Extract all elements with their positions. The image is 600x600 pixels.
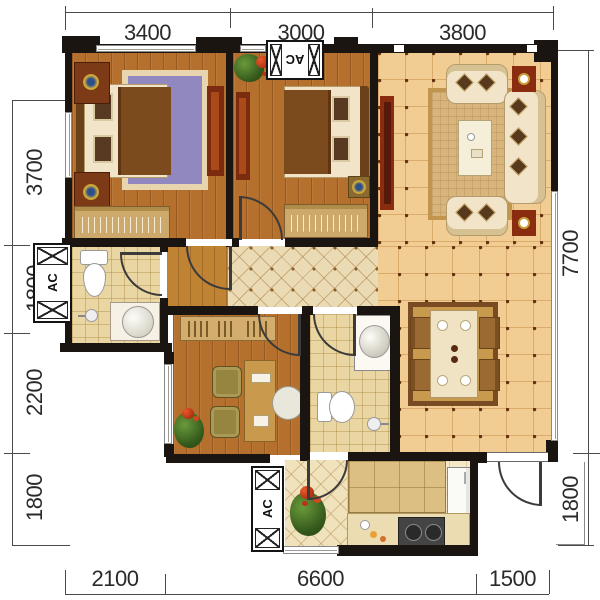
sofa-small-bottom (446, 196, 508, 236)
dim-line-top (65, 12, 553, 13)
guest-chair (212, 366, 242, 398)
ac-hatch (270, 44, 282, 76)
window (164, 364, 172, 444)
door-leaf (120, 252, 162, 255)
wall (470, 452, 478, 556)
floor-plan: 3400 3000 3800 2100 6600 1500 3700 1800 … (0, 0, 600, 600)
desk-item (251, 373, 271, 383)
bedroom1-dresser (207, 86, 224, 176)
books (218, 321, 236, 337)
kitchen-item (370, 531, 377, 538)
wall (551, 44, 558, 191)
door-leaf (239, 196, 242, 240)
bedroom1-wardrobe (74, 206, 170, 239)
plate (437, 320, 448, 331)
dining-chair (410, 359, 431, 391)
dim-tick (12, 545, 70, 546)
ac-hatch (37, 247, 68, 265)
bedroom2-wardrobe (284, 204, 368, 238)
door-leaf (307, 460, 310, 500)
kitchen-counter (348, 460, 446, 513)
shower-arm (380, 423, 389, 425)
dim-line-bottom (65, 594, 549, 595)
books (188, 321, 208, 337)
table-centerpiece (451, 345, 458, 352)
dim-label-left-3: 2200 (22, 348, 48, 438)
dim-label-bottom-3: 1500 (476, 566, 549, 592)
ac-hatch (37, 301, 68, 319)
refrigerator (447, 467, 471, 514)
door-gap (239, 239, 285, 246)
window (65, 112, 72, 178)
door-gap (310, 453, 348, 460)
ac-hatch (308, 44, 320, 76)
door-leaf (353, 314, 356, 356)
table-item (467, 133, 475, 141)
table-item (471, 149, 483, 158)
window (283, 546, 339, 554)
door-gap (258, 307, 302, 314)
dim-tick (553, 6, 554, 30)
wall-corner (164, 352, 174, 364)
dining-chair (479, 359, 500, 391)
wall-jamb (478, 452, 487, 463)
wall-gap (394, 45, 404, 52)
dim-tick (558, 50, 594, 51)
window (551, 191, 558, 441)
ac-label: AC (253, 492, 282, 526)
window (96, 45, 196, 52)
dining-table (430, 310, 478, 398)
sofa-small-top (446, 64, 508, 104)
dining-chair (410, 317, 431, 349)
plate (460, 320, 471, 331)
bed1-blanket (118, 87, 171, 175)
entry-wall (486, 452, 548, 462)
wall (232, 238, 239, 247)
dresser-top (239, 98, 246, 174)
nightstand-ornament (352, 180, 366, 194)
bed2-blanket (284, 90, 331, 174)
bed2-headboard (360, 86, 369, 178)
ac-hatch (255, 470, 280, 490)
wall-gap (527, 45, 537, 52)
lamp (518, 217, 530, 229)
bed2-nightstand (348, 176, 370, 198)
sink-bowl (359, 325, 390, 358)
wall (285, 238, 378, 247)
window (240, 45, 266, 52)
wall (60, 343, 172, 352)
shower-head (367, 417, 381, 431)
flower-pot (182, 408, 194, 419)
bed1-nightstand (74, 62, 110, 104)
lamp (518, 73, 530, 85)
bedroom2-dresser (236, 92, 250, 180)
dim-line-right (588, 50, 589, 545)
bed2-pillow (332, 136, 350, 162)
dim-label-right-1: 7700 (558, 208, 584, 300)
wall (300, 314, 310, 454)
kitchen-bowl (360, 520, 370, 530)
guest-chair (210, 406, 240, 438)
burner (405, 524, 422, 541)
porch-edge (556, 544, 585, 545)
wall (337, 545, 478, 556)
bed1-pillow (93, 135, 113, 163)
ac-platform-left: AC (33, 243, 72, 323)
door-leaf (539, 462, 542, 506)
burner (425, 524, 442, 541)
nightstand-ornament (83, 74, 99, 90)
dim-label-bottom-2: 6600 (165, 566, 476, 592)
dim-line-left (12, 100, 13, 545)
wall-column (196, 37, 242, 45)
wall (390, 306, 400, 454)
porch-edge (584, 462, 585, 545)
tv-screen (384, 102, 391, 204)
plate (460, 375, 471, 386)
stove (398, 517, 445, 546)
door-leaf (298, 314, 301, 356)
fridge-handle (464, 472, 466, 484)
table-centerpiece (451, 356, 458, 363)
dim-tick (12, 100, 70, 101)
ac-platform-bottom: AC (251, 466, 284, 552)
wall (166, 454, 270, 463)
door-swing-entry (498, 462, 542, 506)
ac-label: AC (35, 267, 70, 299)
wall (226, 44, 233, 247)
dim-tick (549, 570, 550, 594)
end-table-lamp (512, 210, 536, 236)
wall (370, 44, 378, 247)
wall-column (334, 37, 358, 45)
wall (348, 452, 480, 461)
dim-tick (558, 545, 594, 546)
door-leaf (229, 246, 232, 290)
dim-label-bottom-1: 2100 (65, 566, 165, 592)
dim-label-top-3: 3800 (372, 20, 553, 46)
ac-hatch (255, 528, 280, 548)
dim-label-right-2: 1800 (558, 456, 584, 544)
dim-label-left-1: 3700 (22, 127, 48, 219)
dresser-top (211, 92, 219, 170)
nightstand-ornament (83, 184, 99, 200)
ac-label: AC (284, 42, 306, 78)
plate (437, 375, 448, 386)
desk-item (253, 415, 269, 427)
coffee-table (458, 120, 492, 176)
hallway-tile-floor (228, 246, 378, 310)
sink-bowl (122, 306, 154, 338)
end-table-lamp (512, 66, 536, 92)
dim-tick (573, 453, 600, 454)
wall (160, 298, 168, 343)
kitchen-item (380, 536, 386, 542)
dim-label-left-4: 1800 (22, 454, 48, 542)
bed2-pillow (332, 96, 350, 122)
door-gap (186, 239, 232, 246)
dining-chair (479, 317, 500, 349)
toilet-bowl (329, 391, 355, 423)
dim-tick (4, 333, 30, 334)
shower-head (85, 309, 98, 322)
wall (160, 306, 258, 315)
tv-console (380, 96, 394, 210)
ac-platform-top: AC (266, 40, 324, 80)
door-gap (313, 307, 357, 314)
